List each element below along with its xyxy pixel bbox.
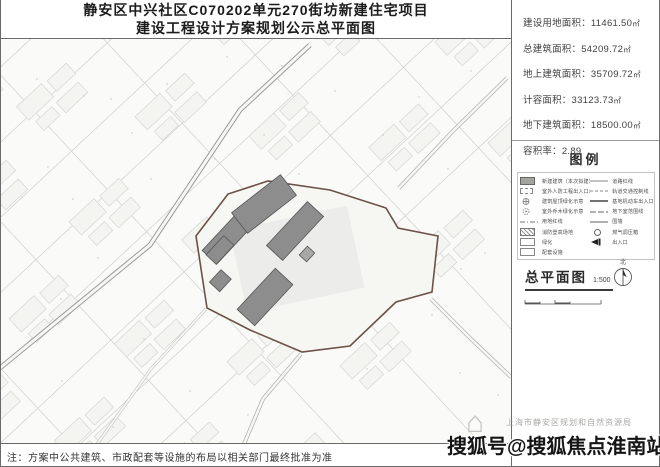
thick-gray-line-icon <box>590 220 610 224</box>
stat-unit: ㎡ <box>633 121 641 130</box>
tree-icon <box>520 197 540 206</box>
plan-title: 总平面图 <box>525 266 587 286</box>
stat-underground-gfa: 地下建筑面积：18500.00㎡ <box>523 117 655 131</box>
stat-label: 地下建筑面积： <box>523 120 591 131</box>
legend-item: 出入口 <box>590 237 653 247</box>
north-label: 北 <box>620 258 626 266</box>
stat-value: 18500.00 <box>591 120 633 131</box>
footnote: 注：方案中公共建筑、市政配套等设施的布局以相关部门最终批准为准 <box>1 443 511 466</box>
dashed-line-icon <box>590 189 610 193</box>
empty-rect-icon <box>520 238 540 246</box>
site-plan-map <box>1 38 511 444</box>
stat-value: 33123.73 <box>572 95 614 106</box>
stat-unit: ㎡ <box>614 96 622 105</box>
stat-unit: ㎡ <box>633 70 641 79</box>
stat-aboveground-gfa: 地上建筑面积：35709.72㎡ <box>523 66 655 80</box>
dashed-rect-icon <box>520 188 540 194</box>
map-canvas <box>1 39 511 444</box>
north-arrow-icon: 北 <box>612 258 636 295</box>
legend-item: 新建建筑（本次拟建） <box>520 176 590 186</box>
page-title-line1: 静安区中兴社区C070202单元270街坊新建住宅项目 <box>83 1 428 19</box>
site-plan <box>196 175 438 352</box>
legend-item: 消防登高场地 <box>520 227 590 237</box>
plan-label: 总平面图 1:500 <box>525 266 613 291</box>
hatched-rect-icon <box>520 228 540 236</box>
legend-item: 地下室范围线 <box>590 207 653 217</box>
legend-item: 绿化 <box>520 237 590 247</box>
entrance-arrow-icon <box>590 238 610 246</box>
title-block: 静安区中兴社区C070202单元270街坊新建住宅项目 建设工程设计方案规划公示… <box>1 0 511 38</box>
legend-item: 轨道交通控制线 <box>590 186 653 196</box>
stat-label: 地上建筑面积： <box>523 69 591 80</box>
plan-scale: 1:500 <box>593 277 611 284</box>
legend-item: 建筑屋顶绿化示意 <box>520 196 590 206</box>
page-title-line2: 建设工程设计方案规划公示总平面图 <box>136 19 376 37</box>
sohu-watermark: 搜狐号@搜狐焦点淮南站 <box>447 430 660 459</box>
dash-dot-line-icon <box>520 220 540 224</box>
stat-land-area: 建设用地面积：11461.50㎡ <box>523 15 655 29</box>
legend-left-column: 新建建筑（本次拟建） 室外人防工程出入口示意 建筑屋顶绿化示意 室外乔木绿化示意… <box>520 176 590 257</box>
project-stats: 建设用地面积：11461.50㎡ 总建筑面积：54209.72㎡ 地上建筑面积：… <box>523 15 655 168</box>
legend-item: 道路红线 <box>590 176 653 186</box>
stat-label: 建设用地面积： <box>523 18 591 29</box>
stat-label: 计容面积： <box>523 95 572 106</box>
dark-line-icon <box>590 199 610 203</box>
legend-right-column: 道路红线 轨道交通控制线 基地机动车出入口 地下室范围线 围墙 燃气调压箱 出入… <box>590 176 653 257</box>
info-panel: 建设用地面积：11461.50㎡ 总建筑面积：54209.72㎡ 地上建筑面积：… <box>511 0 659 466</box>
legend-item: 燃气调压箱 <box>590 227 653 237</box>
legend-item: 基地机动车出入口 <box>590 196 653 206</box>
legend-item: 围墙 <box>590 217 653 227</box>
tree-icon <box>520 207 540 216</box>
legend-item: 用地红线 <box>520 217 590 227</box>
agency-watermark: 上海市静安区规划和自然资源局 <box>506 417 632 428</box>
solid-line-icon <box>590 179 610 183</box>
legend-box: 新建建筑（本次拟建） 室外人防工程出入口示意 建筑屋顶绿化示意 室外乔木绿化示意… <box>517 172 655 260</box>
stat-unit: ㎡ <box>623 45 631 54</box>
circle-icon <box>590 229 610 236</box>
plan-underline <box>525 289 613 291</box>
stat-total-gfa: 总建筑面积：54209.72㎡ <box>523 41 655 55</box>
stat-unit: ㎡ <box>632 19 640 28</box>
stat-value: 11461.50 <box>591 18 632 29</box>
long-dash-line-icon <box>590 210 610 214</box>
new-building-swatch-icon <box>520 177 540 185</box>
panel-divider <box>512 140 659 141</box>
legend-item: 室外人防工程出入口示意 <box>520 186 590 196</box>
stat-value: 35709.72 <box>591 69 633 80</box>
legend-item: 配套设施 <box>520 247 590 257</box>
stat-countable-gfa: 计容面积：33123.73㎡ <box>523 92 655 106</box>
stat-value: 54209.72 <box>581 44 623 55</box>
plan-sheet: 静安区中兴社区C070202单元270街坊新建住宅项目 建设工程设计方案规划公示… <box>0 0 660 467</box>
scale-bar <box>524 295 604 313</box>
empty-rect-icon <box>520 248 540 256</box>
legend-item: 室外乔木绿化示意 <box>520 207 590 217</box>
stat-label: 总建筑面积： <box>523 44 581 55</box>
legend-title: 图例 <box>512 149 659 168</box>
